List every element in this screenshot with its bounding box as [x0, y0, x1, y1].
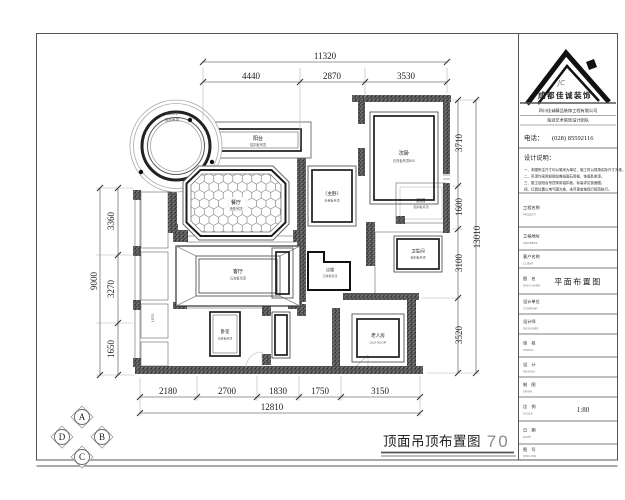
room-label-bath: 卫生间	[411, 248, 424, 255]
titleblock-row-designer: 设计师 DESIGNER	[523, 318, 539, 331]
dim-right-seg1: 3710	[454, 134, 464, 153]
company-name: 成都佳诚装饰	[538, 90, 592, 100]
drawing-title: 顶面吊顶布置图 1：70	[381, 432, 516, 456]
column-dot	[210, 160, 214, 164]
svg-text:CHECK: CHECK	[523, 348, 534, 352]
titleblock-row-check: 审 核 CHECK	[523, 340, 536, 353]
column-dot	[139, 170, 143, 174]
room-elder: 老人房 OLD ROOM	[352, 314, 404, 362]
room-note-bedroom2: 石膏板吊顶800	[393, 158, 415, 163]
room-note-bedroom3: 石膏板吊顶	[218, 337, 232, 341]
room-note-kitchen: 铝扣板吊顶	[413, 204, 428, 209]
dim-top-seg1: 4440	[242, 71, 261, 81]
svg-text:ADDRESS: ADDRESS	[523, 241, 538, 245]
company-line2: 海派艺术装饰设计团队	[547, 117, 590, 124]
titleblock-row-client: 客户名称 CLIENT	[523, 253, 540, 266]
compass-c: C	[79, 452, 85, 462]
design-note-4: 四、灯具位置以电气图为准，未尽事宜按现行规范执行。	[524, 187, 612, 192]
phone-number: (028) 85592116	[552, 135, 594, 142]
dim-bottom-seg1: 2180	[159, 386, 178, 396]
svg-text:设计单位: 设计单位	[523, 298, 540, 305]
dim-bottom-seg2: 2700	[218, 386, 237, 396]
svg-text:设 计: 设 计	[523, 361, 536, 368]
dim-top-total: 11320	[314, 51, 337, 61]
dim-top-seg3: 3530	[397, 71, 416, 81]
circle-code: CD3-2	[166, 111, 178, 116]
room-note-bath: 铝扣板吊顶	[410, 255, 425, 260]
svg-text:图 名: 图 名	[523, 275, 536, 282]
design-note-2: 二、吊顶均采用轻钢龙骨纸面石膏板，饰面乳胶漆。	[524, 174, 605, 179]
dim-bottom-seg5: 3150	[371, 386, 390, 396]
svg-text:设计师: 设计师	[523, 318, 536, 325]
scale-value: 1:80	[577, 406, 590, 414]
svg-text:SCALE: SCALE	[523, 412, 533, 416]
titleblock-row-draw: 制 图 DRAW	[523, 381, 536, 394]
svg-text:DESIGNER: DESIGNER	[523, 327, 539, 331]
room-living: 客厅 石膏板吊顶	[176, 246, 300, 306]
dimension-left: 9000 3360 3270 1650	[89, 185, 135, 378]
svg-text:工程地址: 工程地址	[523, 233, 541, 240]
room-dining: 餐厅 造型吊顶	[183, 166, 289, 240]
svg-text:图 号: 图 号	[523, 447, 536, 453]
room-note-balcony: 铝扣板吊顶	[250, 142, 267, 147]
dim-left-seg2: 3270	[106, 280, 116, 299]
svg-text:工程名称: 工程名称	[523, 204, 540, 211]
dim-right-seg2: 1600	[454, 198, 464, 217]
titleblock-row-dwgname: 图 名 DWG NAME 平面布置图	[523, 275, 602, 288]
company-logo: JC 成都佳诚装饰	[527, 53, 609, 104]
compass-rose: A B C D	[51, 406, 113, 468]
floor-plan: 阳台 铝扣板吊顶 CD3-2 圆形吊顶 餐厅 造型吊顶	[130, 95, 451, 374]
dimension-bottom: 2180 2700 1830 1750 3150 12810	[137, 376, 423, 416]
dim-top-seg2: 2870	[323, 71, 342, 81]
svg-text:DWG NAME: DWG NAME	[523, 284, 540, 288]
title-block: JC 成都佳诚装饰 四川佳诚精品装饰工程有限公司 海派艺术装饰设计团队 电话： …	[519, 53, 625, 458]
room-label-kitchen: 厨房	[416, 197, 426, 204]
svg-text:COMPANY: COMPANY	[523, 307, 538, 311]
dim-bottom-seg4: 1750	[311, 386, 330, 396]
dim-right-seg4: 3520	[454, 326, 464, 345]
room-bedroom2: 次卧 石膏板吊顶800	[370, 112, 438, 204]
dim-left-seg3: 1650	[106, 340, 116, 359]
compass-b: B	[99, 432, 105, 442]
room-note-dining: 造型吊顶	[230, 206, 244, 211]
svg-text:CLIENT: CLIENT	[523, 262, 534, 266]
room-note-elder: OLD ROOM	[370, 341, 387, 345]
logo-monogram: JC	[556, 79, 565, 87]
room-label-hall: 过道	[326, 266, 334, 272]
titleblock-row-date: 日 期 DATE	[523, 428, 536, 440]
svg-text:比 例: 比 例	[523, 403, 536, 410]
room-label-balcony: 阳台	[253, 135, 263, 142]
compass-d: D	[59, 432, 66, 442]
room-kitchen: 厨房 铝扣板吊顶	[413, 197, 428, 209]
design-note-1: 一、本图所注尺寸均以毫米为单位，施工时以现场实际尺寸为准。	[524, 167, 625, 172]
room-label-bedroom2: 次卧	[398, 149, 410, 157]
svg-text:制 图: 制 图	[523, 381, 536, 388]
room-label-dining: 餐厅	[231, 199, 241, 206]
company-line1: 四川佳诚精品装饰工程有限公司	[539, 107, 598, 114]
dim-right-seg3: 3100	[454, 254, 464, 273]
titleblock-row-company: 设计单位 COMPANY	[523, 298, 540, 311]
svg-text:DESIGN: DESIGN	[523, 370, 535, 374]
svg-text:DWG NO.: DWG NO.	[523, 454, 537, 458]
circle-note: 圆形吊顶	[165, 117, 179, 122]
design-note-3: 三、厨卫及阳台吊顶采用铝扣板，标高详见剖面图。	[524, 180, 605, 185]
room-label-master: （主卧）	[322, 190, 341, 197]
titleblock-row-dwgno: 图 号 DWG NO.	[523, 447, 537, 458]
phone-label: 电话：	[524, 133, 544, 142]
titleblock-row-project: 工程名称 PROJECT	[523, 204, 540, 217]
room-hall: 过道 石膏板吊顶	[308, 252, 350, 290]
dim-bottom-seg3: 1830	[269, 386, 288, 396]
ceiling-plan-drawing: 阳台 铝扣板吊顶 CD3-2 圆形吊顶 餐厅 造型吊顶	[0, 0, 625, 500]
column-dot	[188, 118, 192, 122]
room-label-living: 客厅	[233, 268, 243, 275]
drawing-scale-text: 1：70	[456, 432, 509, 451]
svg-text:审 核: 审 核	[523, 340, 536, 347]
dim-left-total: 9000	[89, 272, 99, 291]
dim-right-total: 13010	[472, 225, 482, 248]
svg-text:PROJECT: PROJECT	[523, 213, 536, 217]
svg-text:DATE: DATE	[523, 435, 531, 439]
drawing-name-value: 平面布置图	[554, 277, 602, 287]
svg-text:DRAW: DRAW	[523, 390, 532, 394]
room-bedroom3: 卧室 石膏板吊顶	[210, 312, 262, 368]
compass-a: A	[79, 412, 86, 422]
dim-left-seg1: 3360	[106, 212, 116, 231]
room-bath: 卫生间 铝扣板吊顶	[394, 236, 442, 272]
cad-sheet: 阳台 铝扣板吊顶 CD3-2 圆形吊顶 餐厅 造型吊顶	[0, 0, 625, 500]
dimensions: 11320 4440 2870 3530 9000 3360 3270 1650…	[89, 51, 482, 416]
room-note-master: 石膏板吊顶	[324, 198, 339, 203]
titleblock-row-design: 设 计 DESIGN	[523, 361, 536, 374]
dim-bottom-total: 12810	[261, 402, 284, 412]
room-master: （主卧） 石膏板吊顶	[308, 166, 356, 226]
left-corridor-note: 1570	[151, 313, 155, 323]
room-note-hall: 石膏板吊顶	[323, 274, 337, 278]
design-notes-title: 设计说明：	[524, 154, 555, 162]
titleblock-row-scale: 比 例 SCALE 1:80	[523, 403, 590, 416]
titleblock-row-address: 工程地址 ADDRESS	[523, 233, 541, 246]
dimension-right: 3710 1600 3100 3520 13010	[421, 97, 482, 376]
chimney-icon	[586, 59, 597, 70]
svg-text:客户名称: 客户名称	[523, 253, 540, 260]
svg-text:日 期: 日 期	[523, 428, 536, 434]
room-label-bedroom3: 卧室	[221, 328, 230, 335]
room-label-elder: 老人房	[371, 332, 385, 339]
room-note-living: 石膏板吊顶	[230, 276, 247, 281]
